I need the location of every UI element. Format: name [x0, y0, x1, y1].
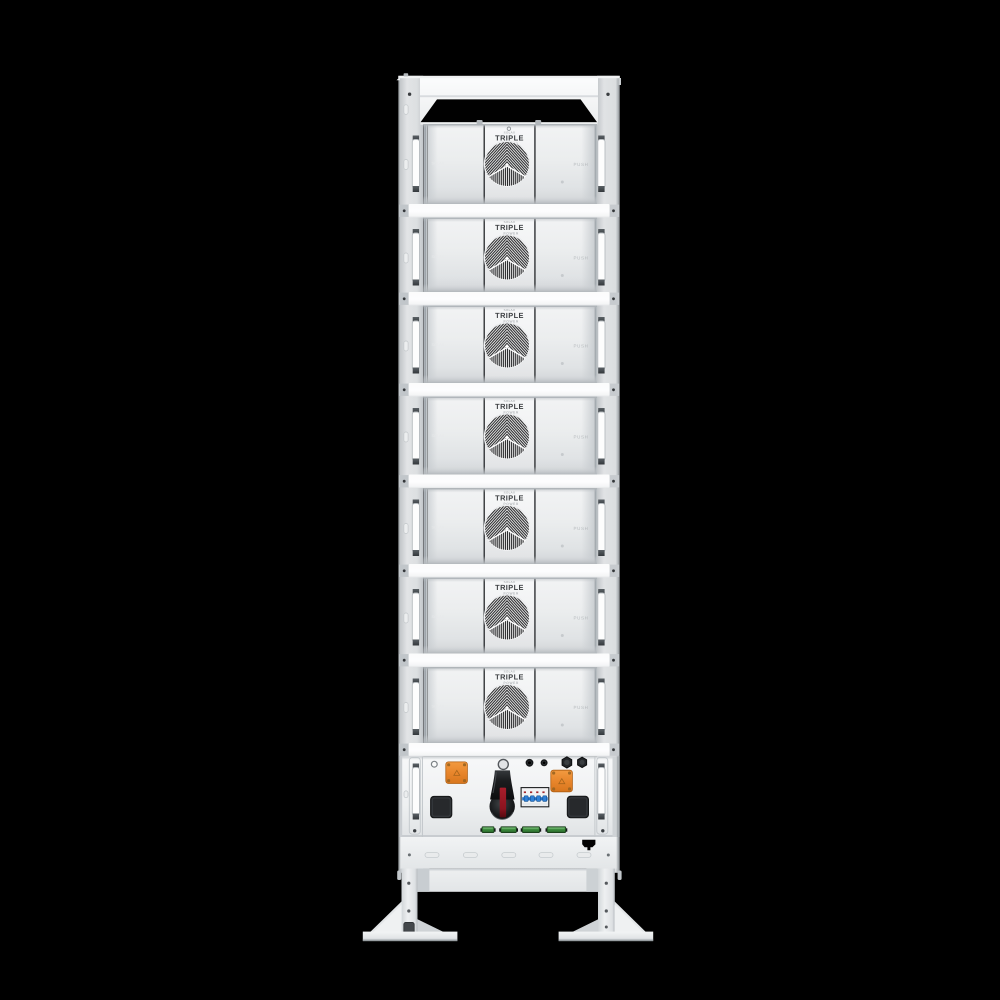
svg-text:PUSH: PUSH: [574, 343, 589, 348]
svg-text:PUSH: PUSH: [574, 162, 589, 167]
svg-text:SOLAX: SOLAX: [432, 526, 445, 530]
svg-text:PUSH: PUSH: [574, 434, 589, 439]
svg-text:PUSH: PUSH: [574, 705, 589, 710]
svg-text:SOLAX: SOLAX: [432, 615, 445, 619]
svg-text:SOLAX: SOLAX: [432, 162, 445, 166]
svg-text:PUSH: PUSH: [574, 255, 589, 260]
svg-text:PUSH: PUSH: [574, 526, 589, 531]
svg-text:SOLAX: SOLAX: [432, 255, 445, 259]
svg-text:SOLAX: SOLAX: [432, 343, 445, 347]
svg-text:SOLAX: SOLAX: [432, 434, 445, 438]
svg-text:PUSH: PUSH: [574, 615, 589, 620]
svg-text:SOLAX: SOLAX: [432, 705, 445, 709]
